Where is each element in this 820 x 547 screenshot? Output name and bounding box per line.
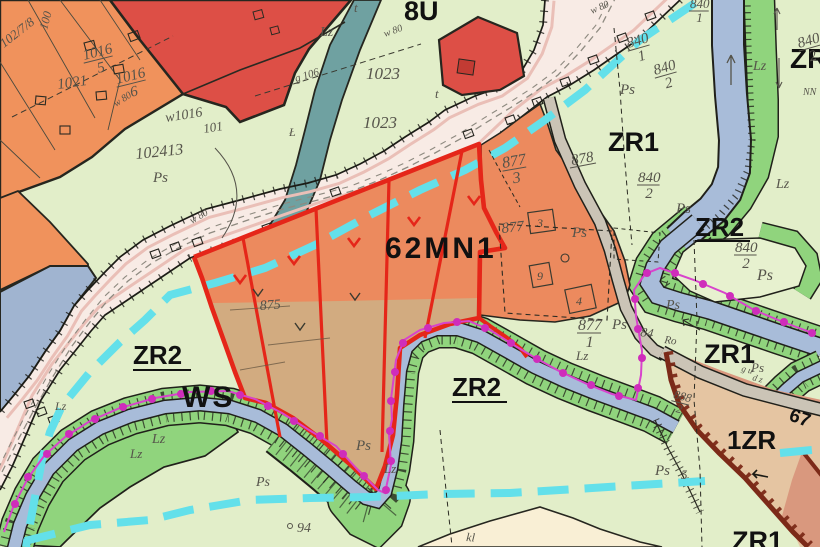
svg-text:Ps: Ps <box>611 317 627 333</box>
svg-text:Lz: Lz <box>575 348 588 363</box>
svg-text:WS: WS <box>182 381 234 414</box>
svg-text:5: 5 <box>681 467 688 482</box>
svg-text:Ps: Ps <box>675 201 691 217</box>
svg-text:Lz: Lz <box>151 432 166 447</box>
svg-text:ZR1: ZR1 <box>608 127 659 157</box>
svg-text:ZR2: ZR2 <box>133 340 182 370</box>
svg-text:Ps: Ps <box>571 225 587 241</box>
svg-text:Lz: Lz <box>775 177 790 192</box>
svg-text:Ps: Ps <box>255 475 271 490</box>
svg-text:t: t <box>435 86 439 101</box>
svg-text:NN: NN <box>802 87 818 98</box>
svg-text:877: 877 <box>578 317 603 334</box>
svg-text:4: 4 <box>576 294 582 308</box>
svg-text:Ps: Ps <box>665 298 681 313</box>
svg-text:ZR1: ZR1 <box>732 526 783 547</box>
svg-text:2: 2 <box>742 256 750 272</box>
svg-text:1023: 1023 <box>363 113 397 132</box>
svg-text:8U: 8U <box>404 0 439 26</box>
svg-text:Ro: Ro <box>663 334 678 348</box>
svg-text:1023: 1023 <box>366 64 400 83</box>
svg-text:ZR2: ZR2 <box>452 372 501 402</box>
svg-text:Ps: Ps <box>619 82 635 98</box>
svg-text:84: 84 <box>640 324 655 341</box>
svg-text:101: 101 <box>202 118 224 136</box>
svg-text:ZR2: ZR2 <box>695 212 744 242</box>
svg-text:877: 877 <box>501 219 527 237</box>
svg-text:Ps: Ps <box>654 463 670 479</box>
svg-text:2: 2 <box>645 186 653 202</box>
svg-text:Lz: Lz <box>54 399 67 413</box>
svg-text:94: 94 <box>297 521 311 536</box>
svg-text:kl: kl <box>466 530 476 545</box>
svg-text:875: 875 <box>259 298 281 314</box>
svg-text:1: 1 <box>696 10 703 25</box>
svg-text:Lz: Lz <box>383 461 396 476</box>
svg-text:Ps: Ps <box>756 267 773 284</box>
svg-text:Ps: Ps <box>152 170 168 186</box>
svg-text:62MN1: 62MN1 <box>385 232 497 265</box>
svg-text:Lz: Lz <box>752 59 767 74</box>
svg-text:Ł: Ł <box>288 125 296 139</box>
svg-text:3: 3 <box>536 216 543 230</box>
svg-text:Ps: Ps <box>355 438 371 454</box>
svg-text:9: 9 <box>537 269 543 283</box>
svg-text:Lz: Lz <box>319 25 334 40</box>
svg-text:840: 840 <box>638 170 661 186</box>
svg-text:1ZR: 1ZR <box>727 425 776 455</box>
svg-text:Lz: Lz <box>129 446 142 461</box>
svg-text:840: 840 <box>735 240 758 256</box>
svg-text:t: t <box>354 0 358 15</box>
